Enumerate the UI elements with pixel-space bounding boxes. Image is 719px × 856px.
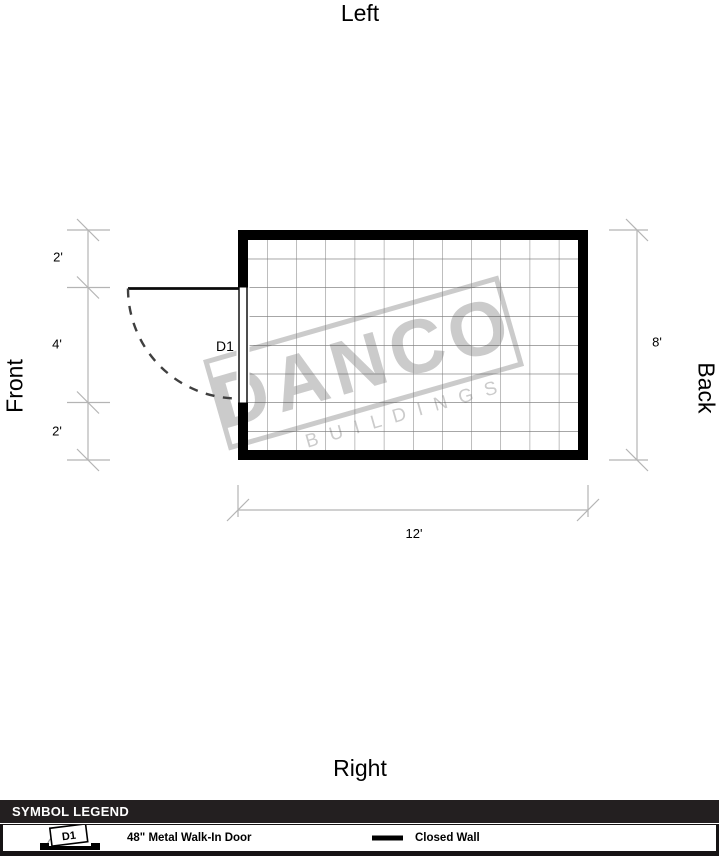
dim-left-mid-label: 4' bbox=[52, 337, 62, 352]
door-opening bbox=[237, 288, 250, 403]
door-tag-label: D1 bbox=[216, 338, 234, 354]
dim-left-bottom-label: 2' bbox=[52, 424, 62, 439]
floor-grid bbox=[248, 240, 578, 450]
floor-plan-canvas: 2' 4' 2' 8' 12' D1 bbox=[0, 0, 719, 790]
floor-plan-page: Left Right Front Back DANCO BUILDINGS bbox=[0, 0, 719, 856]
legend-body: D1 48" Metal Walk-In Door Closed Wall bbox=[0, 824, 719, 856]
legend-door-label: 48" Metal Walk-In Door bbox=[127, 832, 252, 844]
dim-right-label: 8' bbox=[652, 335, 662, 350]
legend-door-symbol-label: D1 bbox=[61, 830, 76, 844]
dim-left-top-label: 2' bbox=[53, 250, 63, 265]
right-dimension-lines bbox=[609, 219, 648, 471]
left-dimension-lines bbox=[67, 219, 110, 471]
walk-in-door-icon: D1 bbox=[37, 825, 103, 851]
bottom-dimension-lines bbox=[227, 485, 599, 521]
symbol-legend: SYMBOL LEGEND D1 48" Metal Walk-In Door … bbox=[0, 800, 719, 856]
legend-wall-label: Closed Wall bbox=[415, 832, 480, 844]
legend-header: SYMBOL LEGEND bbox=[0, 800, 719, 823]
closed-wall-icon bbox=[372, 836, 403, 841]
dim-bottom-label: 12' bbox=[406, 526, 423, 541]
